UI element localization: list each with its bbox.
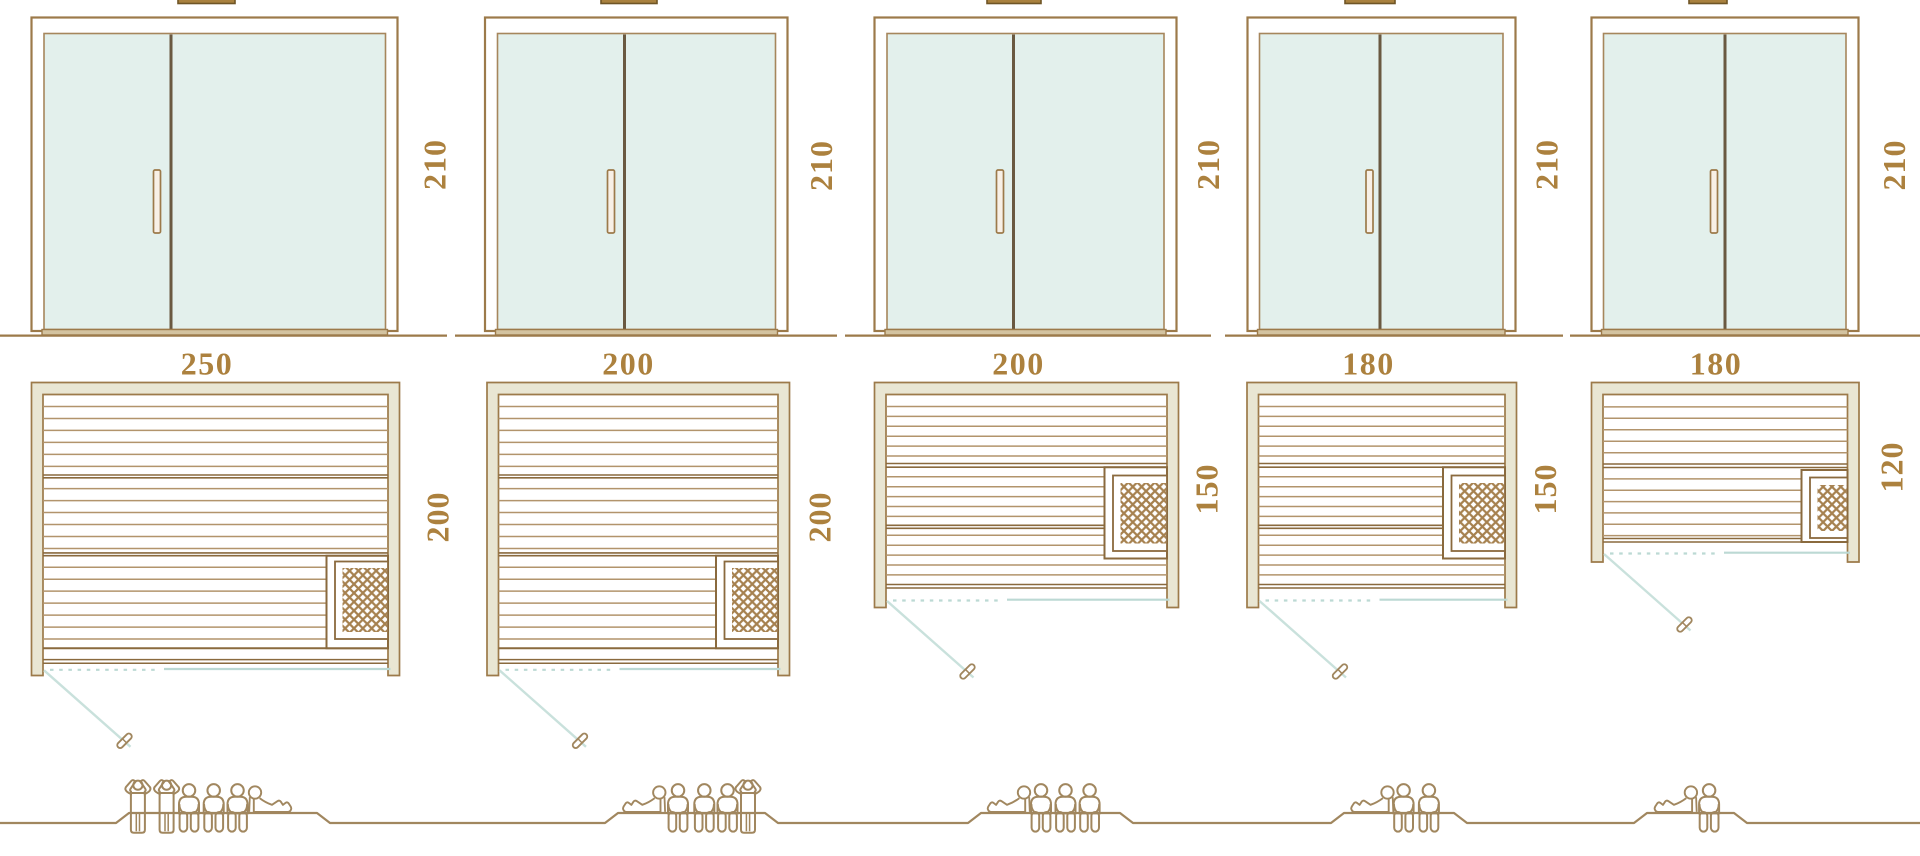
svg-text:200: 200: [992, 346, 1045, 382]
svg-text:150: 150: [1189, 464, 1225, 515]
svg-text:200: 200: [602, 346, 655, 382]
svg-text:120: 120: [1874, 442, 1910, 493]
svg-text:200: 200: [802, 492, 838, 543]
svg-text:180: 180: [1690, 346, 1743, 382]
svg-text:200: 200: [420, 492, 456, 543]
svg-text:210: 210: [417, 139, 453, 190]
svg-text:210: 210: [1190, 139, 1226, 190]
svg-text:210: 210: [1529, 139, 1565, 190]
svg-text:210: 210: [1876, 140, 1912, 191]
svg-text:210: 210: [803, 140, 839, 191]
svg-text:250: 250: [181, 346, 234, 382]
svg-text:150: 150: [1527, 464, 1563, 515]
svg-text:180: 180: [1342, 346, 1395, 382]
